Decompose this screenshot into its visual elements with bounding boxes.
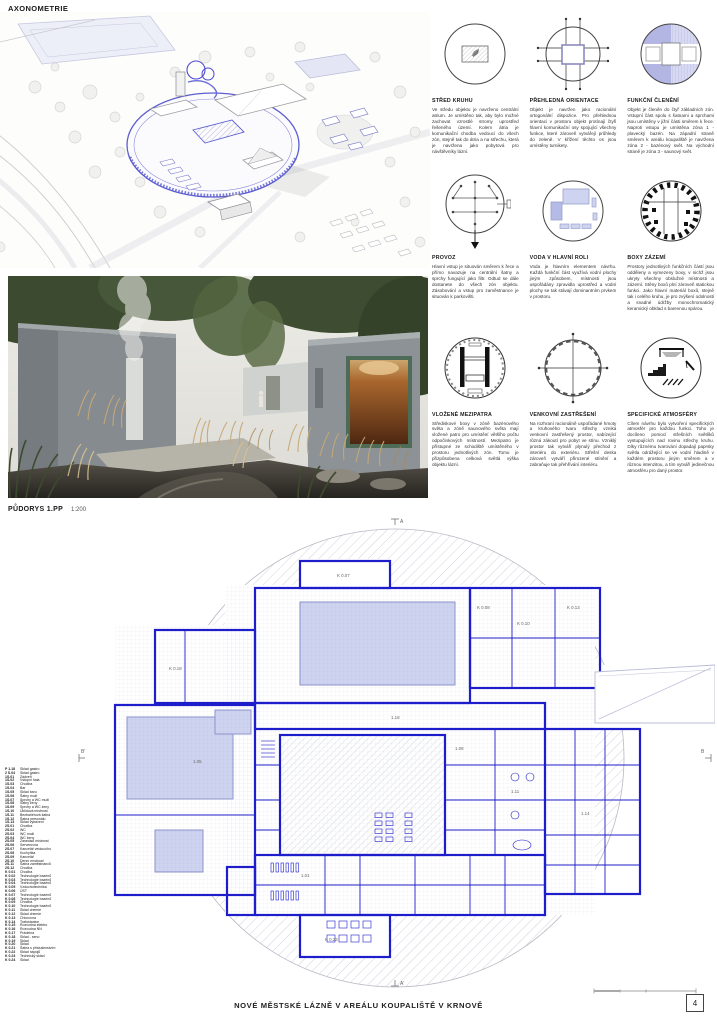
diagram-title: FUNKČNÍ ČLENĚNÍ <box>627 98 714 104</box>
board-title: NOVÉ MĚSTSKÉ LÁZNĚ V AREÁLU KOUPALIŠTĚ V… <box>0 1001 717 1010</box>
diagram-title: SPECIFICKÉ ATMOSFÉRY <box>627 412 714 418</box>
service-boxes-icon <box>638 178 704 244</box>
diagram-title: VENKOVNÍ ZASTŘEŠENÍ <box>530 412 617 418</box>
section-label-b: B <box>701 749 705 755</box>
zoning-icon <box>638 21 704 87</box>
floor-plan: K 0.07 K 0.08 K 0.10 K 0.13 1.18 1.01 1.… <box>75 515 715 990</box>
svg-text:K 0.10: K 0.10 <box>517 621 530 626</box>
mezzanine-icon <box>442 335 508 401</box>
diagram-text: Objekt je členěn do čtyř základních zón.… <box>627 107 714 155</box>
diagram-zastreseni: VENKOVNÍ ZASTŘEŠENÍ Na rozhraní racionál… <box>530 328 617 475</box>
diagram-text: Objekt je navržen jako racionální ortogo… <box>530 107 617 149</box>
diagram-title: BOXY ZÁZEMÍ <box>627 255 714 261</box>
diagram-boxy: BOXY ZÁZEMÍ Prostory jednotlivých funkčn… <box>627 171 714 312</box>
diagram-text: Střediskové boxy v zóně bazénového světa… <box>432 421 519 469</box>
page-number: 4 <box>686 994 704 1012</box>
atmospheres-icon <box>638 335 704 401</box>
svg-text:1.11: 1.11 <box>511 789 520 794</box>
axonometric-drawing <box>0 12 430 268</box>
circle-center-icon <box>442 21 508 87</box>
svg-text:K 0.07: K 0.07 <box>337 573 350 578</box>
svg-text:1.05: 1.05 <box>193 759 202 764</box>
svg-text:1.01: 1.01 <box>301 873 310 878</box>
diagram-text: Na rozhraní racionálně uspořádané hmoty … <box>530 421 617 469</box>
diagram-text: Voda je hlavním elementem návrhu. Každá … <box>530 264 617 300</box>
diagram-title: VLOŽENÉ MEZIPATRA <box>432 412 519 418</box>
canopy-icon <box>535 330 611 406</box>
circulation-icon <box>439 172 511 250</box>
diagram-atmosfery: SPECIFICKÉ ATMOSFÉRY Cílem návrhu bylo v… <box>627 328 714 475</box>
plan-title-text: PŮDORYS 1.PP <box>8 506 63 513</box>
concept-diagrams: STŘED KRUHU Ve středu objektu je navržen… <box>432 14 714 474</box>
section-label-b2: B' <box>81 749 85 755</box>
slide-wedge <box>595 665 715 723</box>
svg-text:1.08: 1.08 <box>455 746 464 751</box>
diagram-title: PROVOZ <box>432 255 519 261</box>
diagram-title: PŘEHLEDNÁ ORIENTACE <box>530 98 617 104</box>
svg-text:K 0.18: K 0.18 <box>169 666 182 671</box>
svg-text:1.14: 1.14 <box>581 811 590 816</box>
diagram-mezipatra: VLOŽENÉ MEZIPATRA Střediskové boxy v zón… <box>432 328 519 475</box>
presentation-board: AXONOMETRIE <box>0 0 717 1024</box>
legend-code: K 0.24 <box>5 959 20 963</box>
diagram-text: Ve středu objektu je navrženo centrální … <box>432 107 519 155</box>
section-label-a: A <box>400 519 404 525</box>
diagram-title: STŘED KRUHU <box>432 98 519 104</box>
diagram-voda: VODA V HLAVNÍ ROLI Voda je hlavním eleme… <box>530 171 617 312</box>
section-label-a2: A' <box>400 981 404 987</box>
svg-text:K 0.13: K 0.13 <box>567 605 580 610</box>
diagram-orientace: PŘEHLEDNÁ ORIENTACE Objekt je navržen ja… <box>530 14 617 155</box>
diagram-stred-kruhu: STŘED KRUHU Ve středu objektu je navržen… <box>432 14 519 155</box>
water-areas-icon <box>540 178 606 244</box>
diagram-cleneni: FUNKČNÍ ČLENĚNÍ Objekt je členěn do čtyř… <box>627 14 714 155</box>
visualization-photo <box>8 276 428 498</box>
diagram-provoz: PROVOZ Hlavní vstup je situován směrem k… <box>432 171 519 312</box>
svg-text:1.18: 1.18 <box>391 715 400 720</box>
diagram-title: VODA V HLAVNÍ ROLI <box>530 255 617 261</box>
diagram-text: Hlavní vstup je situován směrem k řece a… <box>432 264 519 300</box>
svg-text:K 0.23: K 0.23 <box>325 937 338 942</box>
plan-scale: 1:200 <box>71 507 86 513</box>
svg-text:K 0.08: K 0.08 <box>477 605 490 610</box>
orientation-axes-icon <box>535 16 611 92</box>
diagram-text: Cílem návrhu bylo vytvoření specifických… <box>627 421 714 475</box>
diagram-text: Prostory jednotlivých funkčních částí js… <box>627 264 714 312</box>
plan-title: PŮDORYS 1.PP 1:200 <box>8 506 86 513</box>
